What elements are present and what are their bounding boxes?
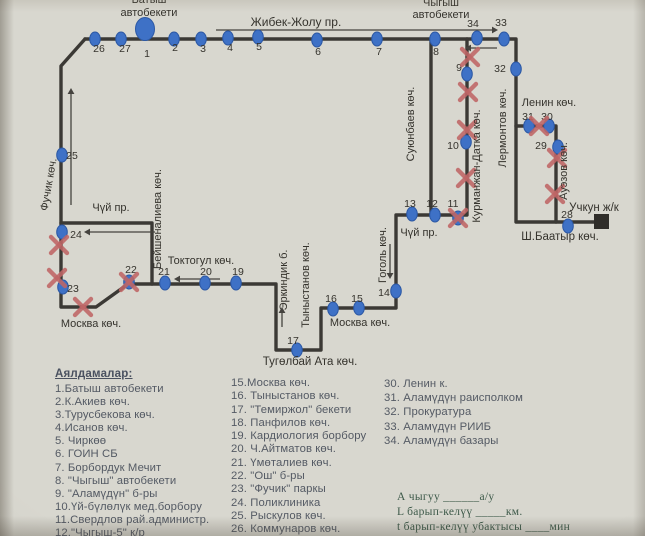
legend-item: 23. "Фучик" паркы [231, 483, 366, 496]
legend-item: 31. Аламүдүн раисполком [384, 391, 523, 405]
note-line: А чыгуу ______а/у [397, 490, 570, 505]
legend-item: 9. "Аламүдүн" б-ры [55, 488, 209, 501]
legend-item: 26. Коммунаров көч. [231, 523, 366, 536]
note-line: t барып-келүү убактысы ____мин [397, 520, 570, 535]
scanned-route-map-page: 2627123456783433910323130292813121114151… [0, 0, 645, 536]
legend-item: 3.Турусбекова көч. [55, 409, 209, 422]
legend-item: 24. Поликлиника [231, 497, 366, 510]
legend-item: 33. Аламүдүн РИИБ [384, 420, 523, 434]
legend-item: 22. "Ош" б-ры [231, 470, 366, 483]
legend-item: 10.Үй-бүлөлүк мед.борбору [55, 501, 209, 514]
legend-column-2: 15.Москва көч.16. Тыныстанов көч.17. "Те… [231, 377, 366, 536]
legend-item: 16. Тыныстанов көч. [231, 390, 366, 403]
note-line: L барып-келүү _____км. [397, 505, 570, 520]
legend-item: 1.Батыш автобекети [55, 383, 209, 396]
legend-item: 25. Рыскулов көч. [231, 510, 366, 523]
legend-item: 4.Исанов көч. [55, 422, 209, 435]
legend-item: 2.К.Акиев көч. [55, 396, 209, 409]
legend-item: 18. Панфилов көч. [231, 417, 366, 430]
legend-item: 32. Прокуратура [384, 405, 523, 419]
legend-item: 6. ГОИН СБ [55, 448, 209, 461]
legend-item: 19. Кардиология борбору [231, 430, 366, 443]
legend-item: 21. Үмөталиев көч. [231, 457, 366, 470]
legend-item: 7. Борбордук Мечит [55, 462, 209, 475]
legend-item: 8. "Чыгыш" автобекети [55, 475, 209, 488]
handwritten-notes: А чыгуу ______а/уL барып-келүү _____км.t… [397, 490, 570, 536]
legend-item: 17. "Темиржол" бекети [231, 404, 366, 417]
legend-header: Аялдамалар: [55, 368, 133, 380]
legend-item: 11.Свердлов рай.администр. [55, 514, 209, 527]
legend-item: 15.Москва көч. [231, 377, 366, 390]
legend-column-3: 30. Ленин к.31. Аламүдүн раисполком32. П… [384, 377, 523, 448]
legend-item: 20. Ч.Айтматов көч. [231, 443, 366, 456]
legend-item: 34. Аламүдүн базары [384, 434, 523, 448]
stops-legend: Аялдамалар: 1.Батыш автобекети2.К.Акиев … [0, 0, 645, 536]
legend-column-1: 1.Батыш автобекети2.К.Акиев көч.3.Турусб… [55, 383, 209, 536]
legend-item: 12."Чыгыш-5" к/р [55, 527, 209, 536]
legend-item: 30. Ленин к. [384, 377, 523, 391]
legend-item: 5. Чиркөө [55, 435, 209, 448]
